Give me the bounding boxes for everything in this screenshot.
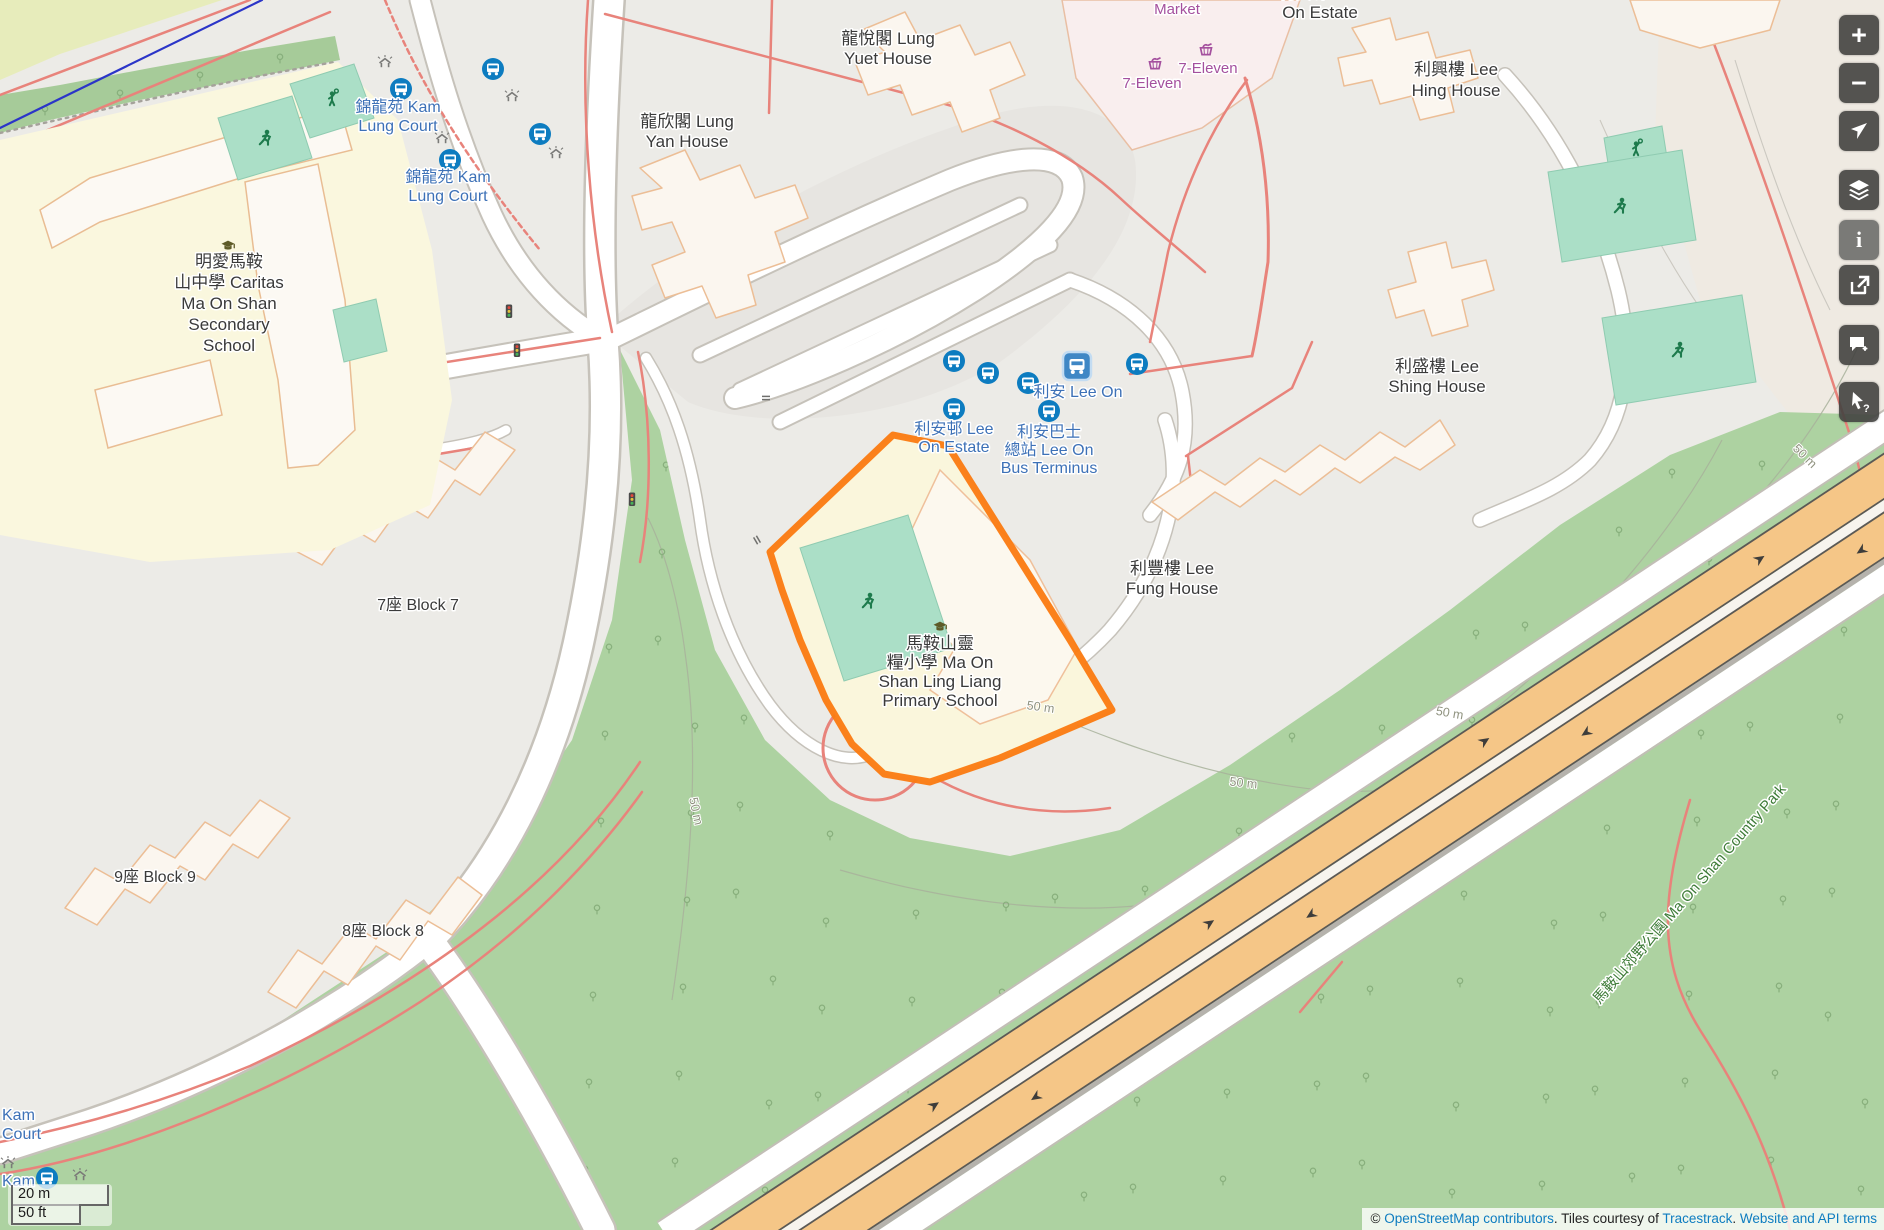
bus-stop-icon	[943, 350, 965, 372]
osm-contributors-link[interactable]: OpenStreetMap contributors	[1384, 1211, 1554, 1226]
bus-stop-icon	[943, 398, 965, 420]
zoom-out-button[interactable]: −	[1839, 63, 1879, 103]
label-7eleven: 7-Eleven	[1122, 75, 1181, 92]
attribution-prefix: ©	[1371, 1211, 1385, 1226]
label-lee-on-stop: 利安 Lee On	[1034, 383, 1123, 401]
tracestrack-link[interactable]: Tracestrack	[1662, 1211, 1732, 1226]
label-7eleven: 7-Eleven	[1178, 60, 1237, 77]
label-block8: 8座 Block 8	[342, 922, 424, 940]
bus-stop-icon	[1038, 400, 1060, 422]
share-icon	[1848, 274, 1870, 296]
label-block7: 7座 Block 7	[377, 596, 459, 614]
label-lee-on-estate-top: 利安邨 LeeOn Estate	[1278, 0, 1362, 22]
locate-button[interactable]	[1839, 111, 1879, 151]
query-features-button[interactable]: ?	[1839, 382, 1879, 422]
layers-icon	[1848, 179, 1870, 201]
label-contour: 50 m	[1229, 775, 1258, 792]
bus-stop-icon	[439, 149, 461, 171]
bus-stop-icon	[390, 78, 412, 100]
traffic-signal-icon	[514, 344, 520, 358]
query-cursor-icon: ?	[1847, 390, 1871, 414]
info-button[interactable]: i	[1839, 220, 1879, 260]
bus-stop-icon	[482, 58, 504, 80]
scale-imperial: 50 ft	[11, 1204, 81, 1225]
bus-station-icon	[1063, 352, 1091, 380]
locate-arrow-icon	[1849, 121, 1869, 141]
label-lee-fung-house: 利豐樓 LeeFung House	[1126, 559, 1219, 598]
bus-stop-icon	[1126, 353, 1148, 375]
scale-bar: 20 m 50 ft	[8, 1184, 112, 1226]
attribution-middle: . Tiles courtesy of	[1554, 1211, 1663, 1226]
share-button[interactable]	[1839, 265, 1879, 305]
label-lee-shing-house: 利盛樓 LeeShing House	[1388, 357, 1485, 396]
label-block9: 9座 Block 9	[114, 868, 196, 886]
attribution-sep: .	[1732, 1211, 1740, 1226]
label-market: Market	[1154, 1, 1201, 18]
layers-button[interactable]	[1839, 170, 1879, 210]
map-viewport[interactable]: 龍悅閣 LungYuet House 龍欣閣 LungYan House 明愛馬…	[0, 0, 1884, 1230]
traffic-signal-icon	[629, 493, 635, 507]
label-lung-yuet-house: 龍悅閣 LungYuet House	[841, 29, 935, 68]
traffic-signal-icon	[506, 305, 512, 319]
label-lung-yan-house: 龍欣閣 LungYan House	[640, 112, 734, 151]
zoom-in-button[interactable]: +	[1839, 15, 1879, 55]
map-canvas[interactable]: 龍悅閣 LungYuet House 龍欣閣 LungYan House 明愛馬…	[0, 0, 1884, 1230]
terms-link[interactable]: Website and API terms	[1740, 1211, 1877, 1226]
bus-stop-icon	[529, 123, 551, 145]
scale-metric: 20 m	[11, 1185, 109, 1206]
bus-stop-icon	[977, 362, 999, 384]
attribution-bar: © OpenStreetMap contributors. Tiles cour…	[1362, 1208, 1884, 1230]
svg-text:?: ?	[1863, 403, 1870, 414]
add-note-button[interactable]	[1839, 325, 1879, 365]
note-icon	[1847, 333, 1871, 357]
